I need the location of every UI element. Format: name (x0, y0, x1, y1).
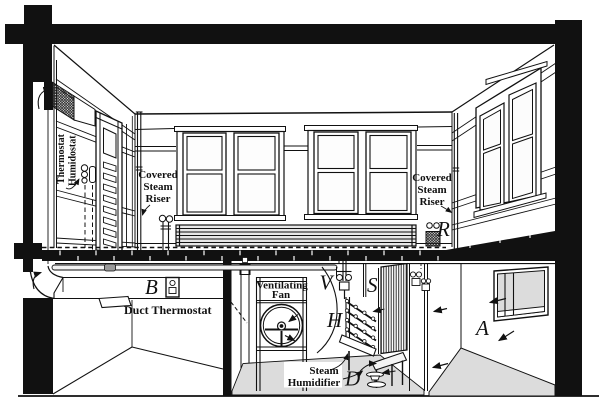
svg-text:A: A (474, 316, 489, 340)
svg-text:Humidifier: Humidifier (288, 377, 341, 389)
svg-text:D: D (344, 367, 360, 391)
svg-text:Riser: Riser (419, 196, 444, 208)
svg-text:Covered: Covered (138, 169, 178, 181)
svg-text:B: B (145, 275, 158, 299)
svg-text:Covered: Covered (412, 172, 452, 184)
svg-text:S: S (367, 273, 378, 297)
svg-text:Fan: Fan (272, 289, 290, 301)
svg-text:Duct Thermostat: Duct Thermostat (124, 303, 211, 317)
svg-text:Steam: Steam (417, 184, 446, 196)
svg-text:Riser: Riser (145, 193, 170, 205)
svg-text:Thermostat: Thermostat (56, 133, 67, 184)
svg-text:Steam: Steam (143, 181, 172, 193)
svg-text:Humidostat: Humidostat (68, 135, 79, 186)
svg-text:R: R (436, 217, 450, 241)
svg-text:V: V (320, 271, 335, 295)
svg-text:H: H (326, 308, 344, 332)
svg-text:Steam: Steam (309, 365, 338, 377)
